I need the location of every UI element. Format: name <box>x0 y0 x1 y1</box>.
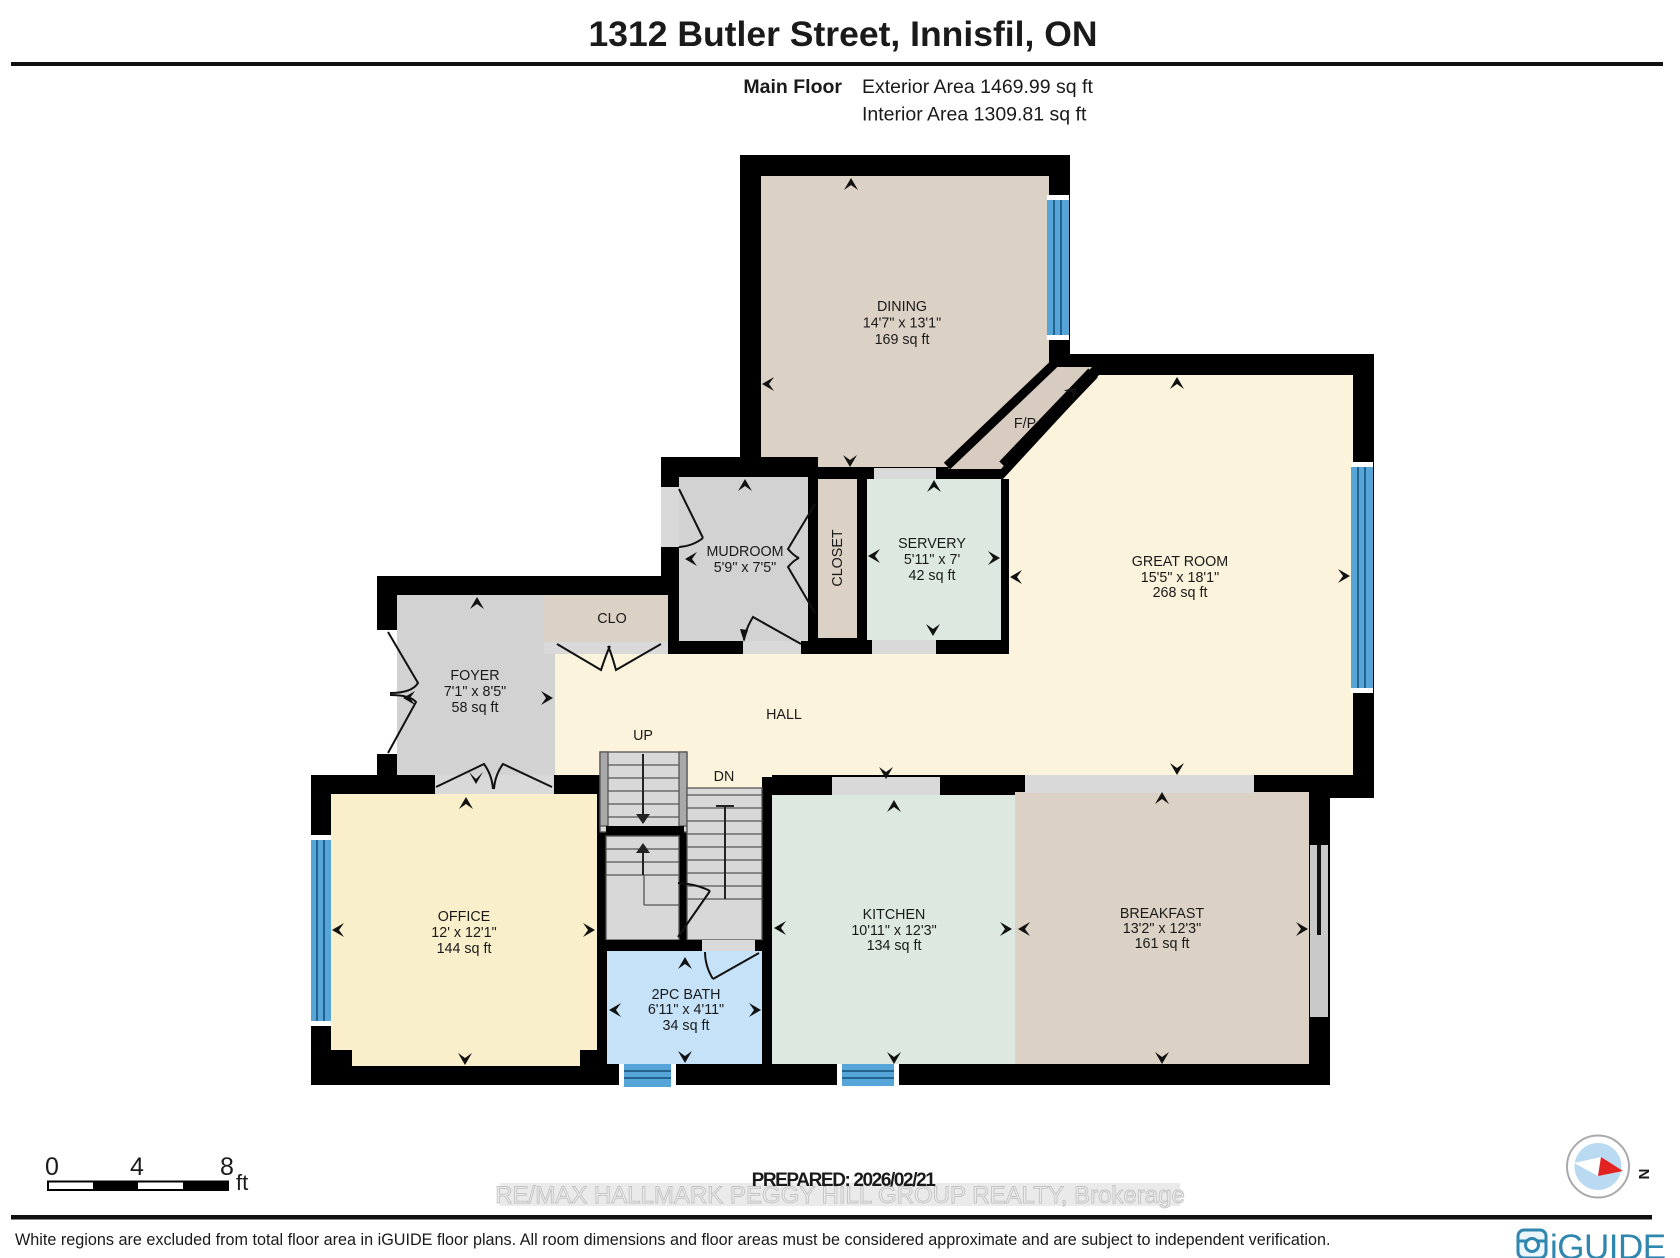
svg-text:CLOSET: CLOSET <box>830 529 846 586</box>
svg-text:169 sq ft: 169 sq ft <box>875 332 930 348</box>
svg-text:DINING: DINING <box>877 299 927 315</box>
svg-text:SERVERY: SERVERY <box>898 536 966 552</box>
svg-text:MUDROOM: MUDROOM <box>706 544 783 560</box>
svg-text:BREAKFAST: BREAKFAST <box>1120 906 1204 922</box>
svg-text:6'11" x 4'11": 6'11" x 4'11" <box>648 1002 724 1018</box>
svg-text:HALL: HALL <box>766 707 802 723</box>
svg-text:FOYER: FOYER <box>450 668 499 684</box>
svg-text:UP: UP <box>633 728 653 744</box>
svg-text:2PC BATH: 2PC BATH <box>652 987 721 1003</box>
svg-text:0: 0 <box>45 1153 59 1181</box>
svg-text:N: N <box>1635 1169 1652 1180</box>
svg-text:OFFICE: OFFICE <box>438 909 490 925</box>
svg-text:134 sq ft: 134 sq ft <box>867 938 922 954</box>
svg-text:Exterior Area 1469.99 sq ft: Exterior Area 1469.99 sq ft <box>862 76 1093 98</box>
svg-text:5'11" x 7': 5'11" x 7' <box>904 552 961 568</box>
svg-text:34 sq ft: 34 sq ft <box>663 1018 710 1034</box>
svg-text:F/P: F/P <box>1014 416 1036 432</box>
svg-text:CLO: CLO <box>597 611 626 627</box>
svg-text:14'7" x 13'1": 14'7" x 13'1" <box>863 316 941 332</box>
svg-text:5'9" x 7'5": 5'9" x 7'5" <box>714 560 777 576</box>
svg-text:8: 8 <box>220 1153 234 1181</box>
svg-text:268 sq ft: 268 sq ft <box>1153 585 1208 601</box>
svg-text:Interior Area 1309.81 sq ft: Interior Area 1309.81 sq ft <box>862 104 1087 126</box>
svg-text:GREAT ROOM: GREAT ROOM <box>1132 554 1228 570</box>
svg-text:1312 Butler Street, Innisfil,: 1312 Butler Street, Innisfil, ON <box>589 14 1098 54</box>
svg-text:DN: DN <box>714 769 735 785</box>
svg-text:12' x 12'1": 12' x 12'1" <box>431 925 496 941</box>
svg-text:7'1" x 8'5": 7'1" x 8'5" <box>444 684 507 700</box>
svg-text:15'5" x 18'1": 15'5" x 18'1" <box>1141 570 1219 586</box>
svg-text:161 sq ft: 161 sq ft <box>1135 936 1190 952</box>
svg-text:White regions are excluded fro: White regions are excluded from total fl… <box>15 1231 1330 1249</box>
svg-text:PREPARED: 2026/02/21: PREPARED: 2026/02/21 <box>752 1170 937 1191</box>
svg-text:144 sq ft: 144 sq ft <box>437 941 492 957</box>
svg-text:ft: ft <box>236 1170 248 1195</box>
svg-text:58 sq ft: 58 sq ft <box>452 700 499 716</box>
svg-text:10'11" x 12'3": 10'11" x 12'3" <box>851 923 936 939</box>
svg-text:13'2" x 12'3": 13'2" x 12'3" <box>1123 921 1201 937</box>
svg-text:KITCHEN: KITCHEN <box>863 907 926 923</box>
svg-text:42 sq ft: 42 sq ft <box>909 568 956 584</box>
svg-text:iGUIDE: iGUIDE <box>1550 1228 1666 1258</box>
svg-text:Main Floor: Main Floor <box>743 76 842 98</box>
svg-text:4: 4 <box>130 1153 144 1181</box>
